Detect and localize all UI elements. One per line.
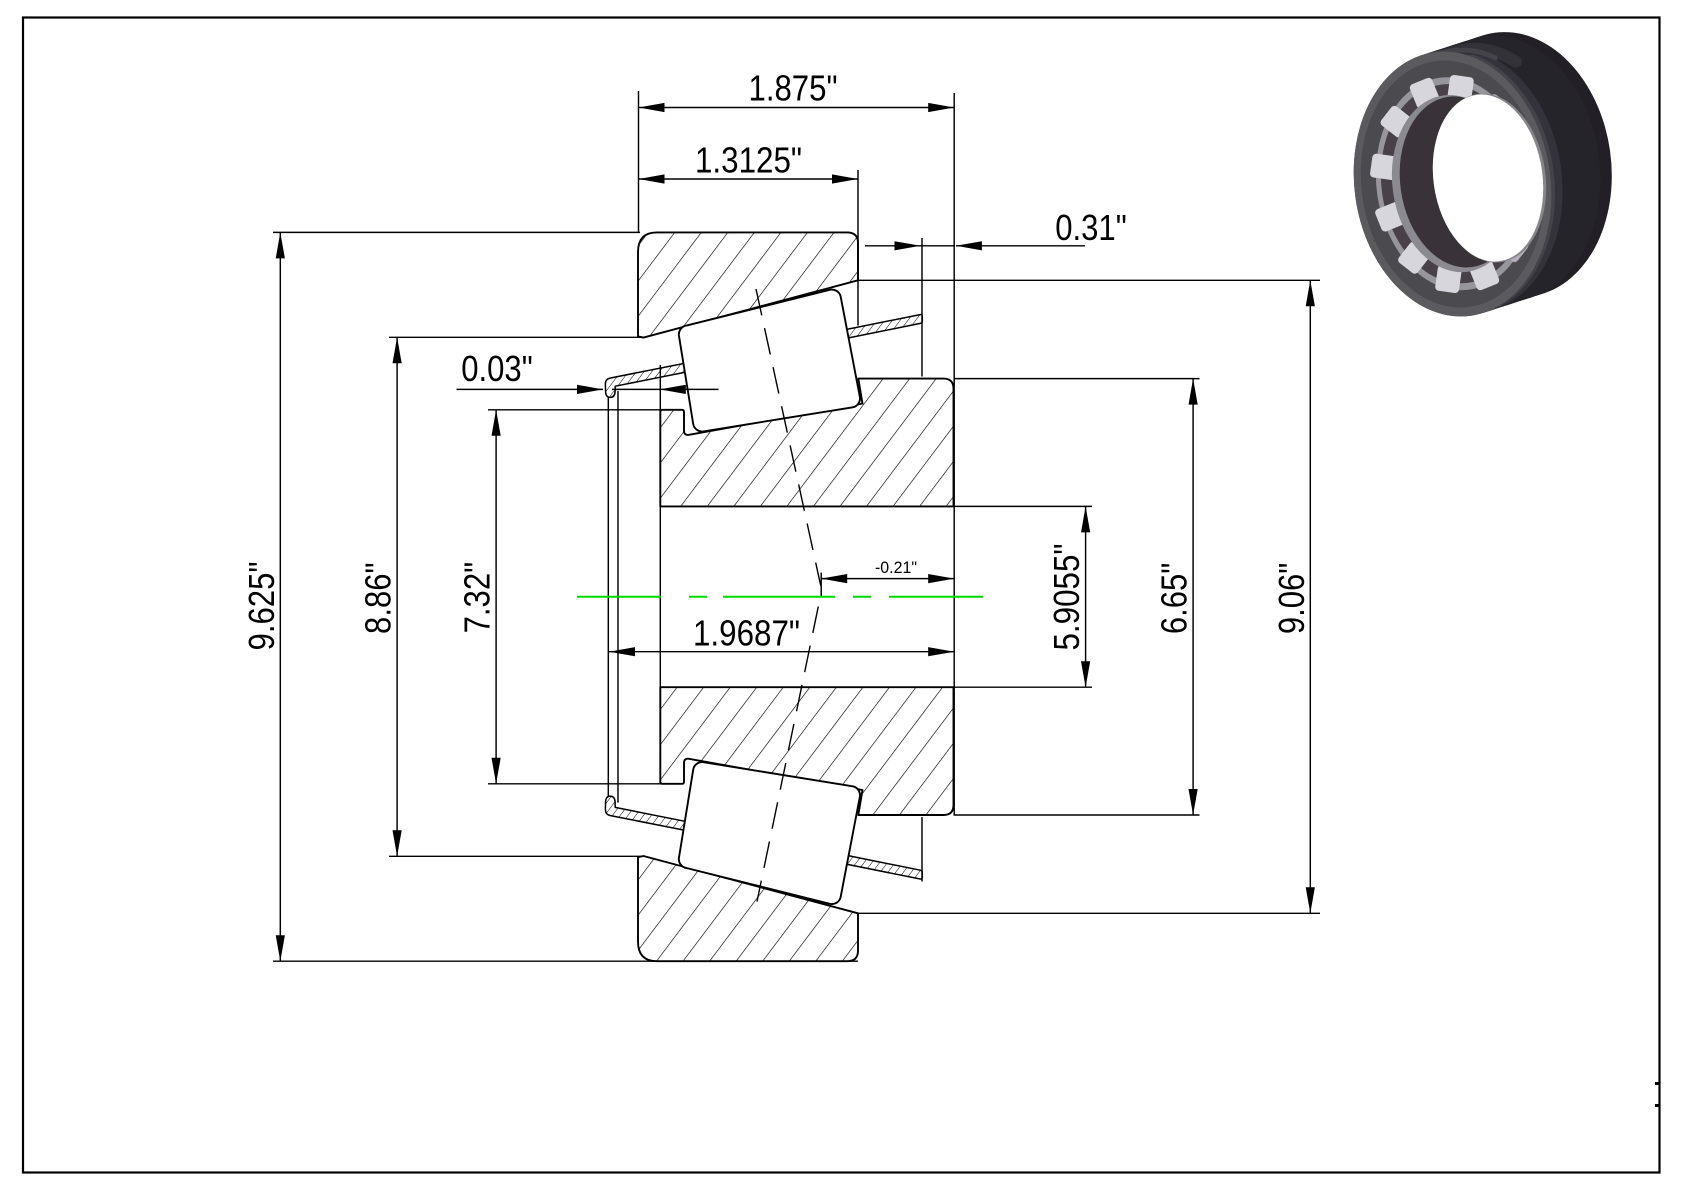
- svg-text:0.03": 0.03": [461, 348, 533, 389]
- svg-text:-0.21": -0.21": [875, 558, 917, 577]
- svg-text:5.9055": 5.9055": [1046, 544, 1087, 651]
- svg-text:0.31": 0.31": [1055, 207, 1127, 248]
- svg-text:7.32": 7.32": [457, 562, 498, 634]
- svg-text:8.86": 8.86": [358, 562, 399, 634]
- svg-text:1.3125": 1.3125": [695, 140, 802, 181]
- svg-text:6.65": 6.65": [1154, 563, 1195, 635]
- svg-text:9.625": 9.625": [241, 562, 282, 651]
- svg-text:9.06": 9.06": [1271, 563, 1312, 635]
- svg-text:1.9687": 1.9687": [693, 613, 800, 654]
- svg-text:1.875": 1.875": [749, 68, 838, 109]
